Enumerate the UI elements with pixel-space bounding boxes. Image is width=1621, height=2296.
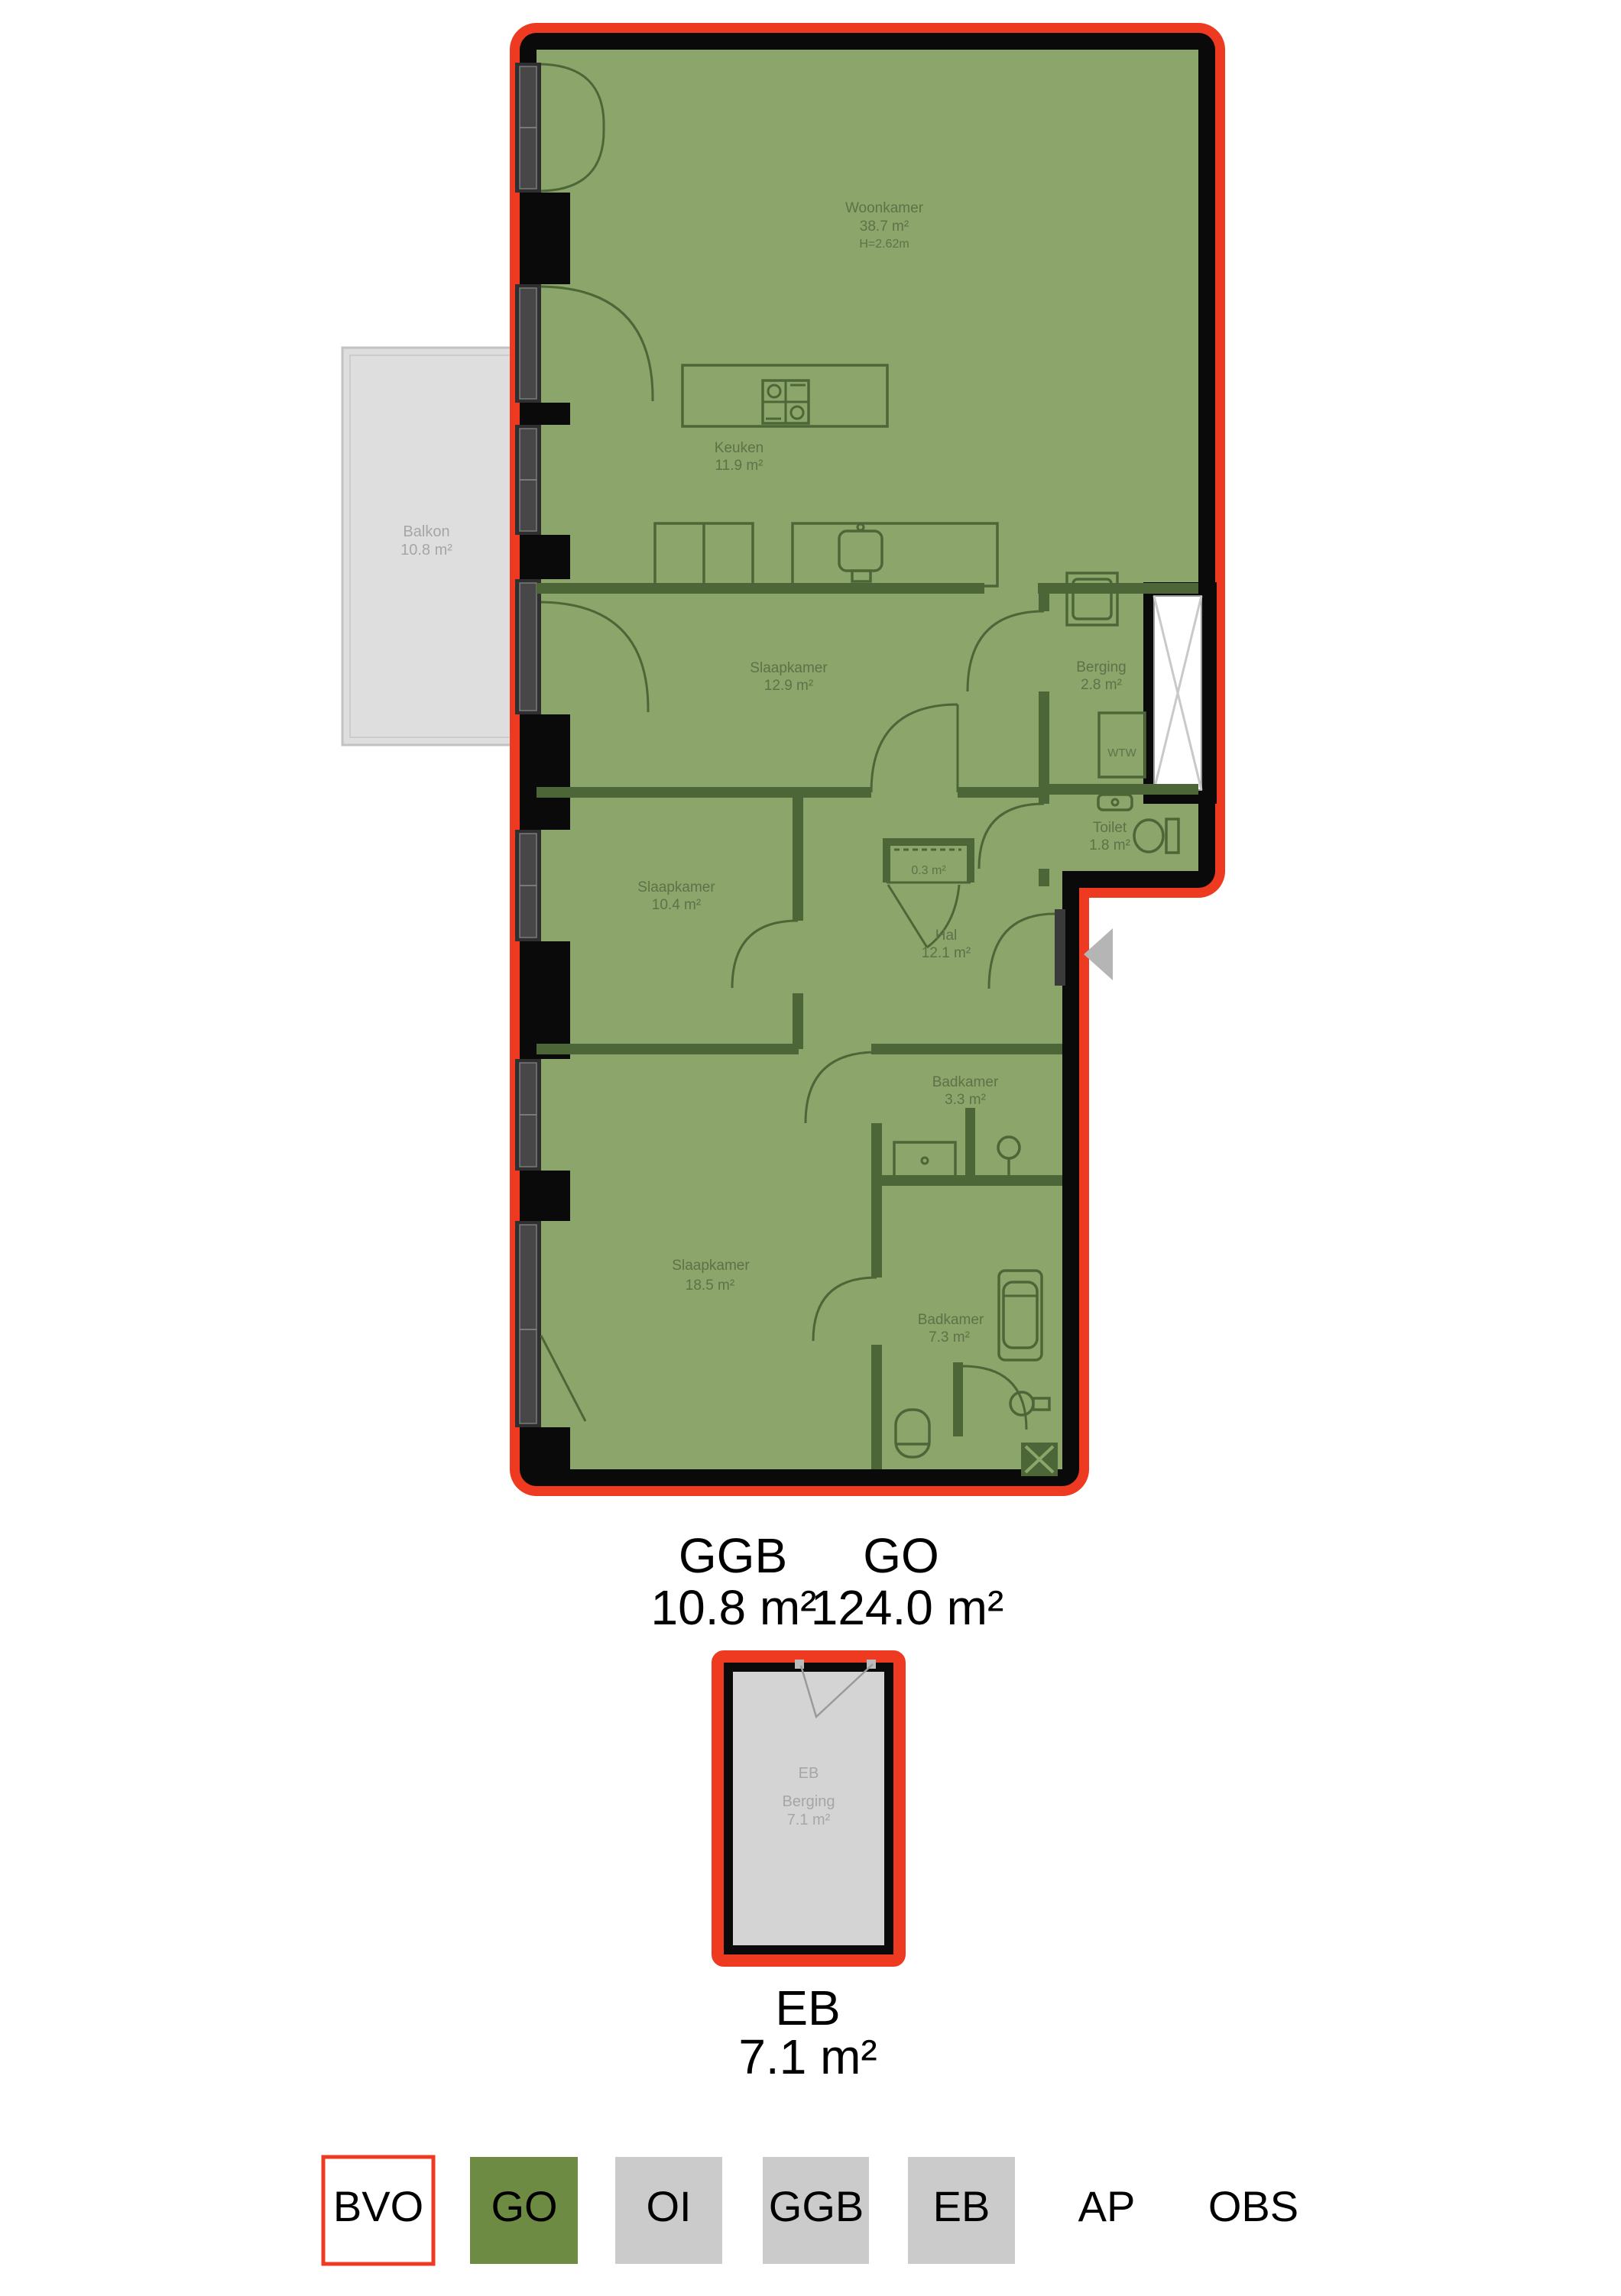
room-area-hal: 12.1 m² [922, 945, 971, 961]
window-icon [515, 63, 541, 193]
wtw-label: WTW [1107, 746, 1136, 759]
eb-name: Berging [783, 1793, 835, 1810]
balcony: Balkon 10.8 m² [342, 348, 537, 745]
legend: BVO GO OI GGB EB AP OBS [323, 2157, 1298, 2264]
room-area-badkamer-1: 3.3 m² [945, 1092, 986, 1108]
window-icon [515, 1221, 541, 1427]
eb-code: EB [799, 1765, 819, 1782]
summary-go-label: GO [863, 1528, 939, 1583]
summary-ggb-label: GGB [679, 1528, 787, 1583]
external-storage: EB Berging 7.1 m² [718, 1656, 900, 1961]
room-area-berging: 2.8 m² [1081, 677, 1122, 693]
eb-area: 7.1 m² [787, 1812, 831, 1828]
bathroom-door-leaf [953, 1362, 963, 1436]
legend-item-eb: EB [908, 2157, 1015, 2264]
floorplan-page: Balkon 10.8 m² [0, 0, 1621, 2292]
legend-item-ap: AP [1078, 2182, 1136, 2230]
window-icon [515, 1059, 541, 1171]
area-summary: GGB GO 10.8 m² 124.0 m² [651, 1528, 1004, 1635]
legend-label-obs: OBS [1208, 2182, 1298, 2230]
eb-caption-value: 7.1 m² [738, 2029, 877, 2084]
legend-item-bvo: BVO [323, 2157, 433, 2264]
room-label-slaapkamer-3: Slaapkamer [672, 1258, 750, 1274]
legend-label-ap: AP [1078, 2182, 1136, 2230]
room-height-woonkamer: H=2.62m [859, 238, 909, 251]
room-area-badkamer-2: 7.3 m² [929, 1329, 970, 1346]
room-label-woonkamer: Woonkamer [845, 200, 924, 216]
room-label-berging: Berging [1076, 659, 1127, 675]
bathroom-partition [965, 1108, 975, 1179]
legend-label-eb: EB [933, 2182, 990, 2230]
room-label-keuken: Keuken [715, 440, 763, 456]
legend-item-go: GO [470, 2157, 578, 2264]
legend-item-obs: OBS [1208, 2182, 1298, 2230]
balcony-area: 10.8 m² [400, 542, 452, 559]
eb-caption-label: EB [775, 1980, 840, 2035]
room-area-slaapkamer-3: 18.5 m² [686, 1278, 734, 1294]
room-area-slaapkamer-1: 12.9 m² [764, 678, 813, 694]
floorplan-svg: Balkon 10.8 m² [0, 0, 1621, 2292]
legend-item-ggb: GGB [763, 2157, 869, 2264]
room-label-toilet: Toilet [1093, 820, 1127, 836]
legend-label-oi: OI [646, 2182, 691, 2230]
summary-go-value: 124.0 m² [811, 1580, 1004, 1635]
legend-label-go: GO [491, 2182, 557, 2230]
window-icon [515, 830, 541, 941]
entrance-door-leaf [1055, 909, 1065, 986]
room-label-badkamer-1: Badkamer [932, 1074, 999, 1090]
room-label-hal: Hal [935, 928, 958, 944]
window-icon [515, 284, 541, 403]
room-label-slaapkamer-1: Slaapkamer [750, 660, 828, 676]
eb-door-post [795, 1660, 804, 1669]
duct-x-icon [1021, 1443, 1058, 1476]
legend-label-ggb: GGB [769, 2182, 864, 2230]
external-storage-caption: EB 7.1 m² [738, 1980, 877, 2084]
balcony-label: Balkon [403, 523, 449, 540]
room-area-woonkamer: 38.7 m² [860, 219, 909, 235]
shaft [1143, 582, 1217, 804]
summary-ggb-value: 10.8 m² [651, 1580, 817, 1635]
room-area-toilet: 1.8 m² [1089, 837, 1130, 853]
room-area-slaapkamer-2: 10.4 m² [652, 897, 701, 913]
legend-label-bvo: BVO [333, 2182, 423, 2230]
window-icon [515, 579, 541, 714]
room-area-meterkast: 0.3 m² [911, 864, 946, 877]
room-label-slaapkamer-2: Slaapkamer [637, 879, 715, 895]
window-icon [515, 425, 541, 535]
room-area-keuken: 11.9 m² [715, 458, 763, 474]
legend-item-oi: OI [615, 2157, 722, 2264]
room-label-badkamer-2: Badkamer [918, 1312, 984, 1328]
